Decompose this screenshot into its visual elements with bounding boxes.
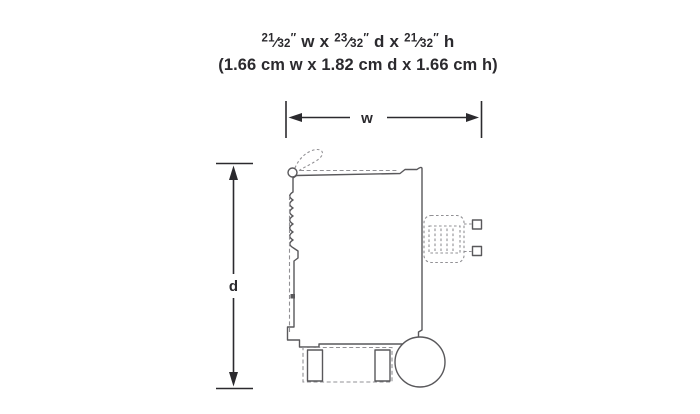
width-arrowhead-right <box>466 113 479 122</box>
depth-dimension: d <box>216 164 253 389</box>
door-latch-tick <box>291 294 296 299</box>
crank-knob-bottom <box>473 247 482 256</box>
crank-mechanism-dashed <box>424 216 482 263</box>
lid-handle-dashed-loop <box>295 149 323 172</box>
crank-inner-outline <box>429 226 460 253</box>
depth-arrowhead-top <box>229 166 238 181</box>
product-body-outline <box>288 167 423 347</box>
product-line-drawing: w d <box>0 0 700 414</box>
crank-outer-outline <box>424 216 464 263</box>
right-foot <box>375 350 390 381</box>
depth-label: d <box>229 278 238 295</box>
wheel-circle <box>395 337 445 387</box>
width-arrowhead-left <box>289 113 303 122</box>
left-foot <box>308 350 323 381</box>
depth-arrowhead-bottom <box>229 372 238 387</box>
hinge-circle <box>288 168 297 177</box>
width-label: w <box>360 110 373 127</box>
crank-knob-top <box>473 220 482 229</box>
width-dimension: w <box>286 101 482 138</box>
dimension-diagram: 21⁄32″ w x 23⁄32″ d x 21⁄32″ h (1.66 cm … <box>0 0 700 414</box>
